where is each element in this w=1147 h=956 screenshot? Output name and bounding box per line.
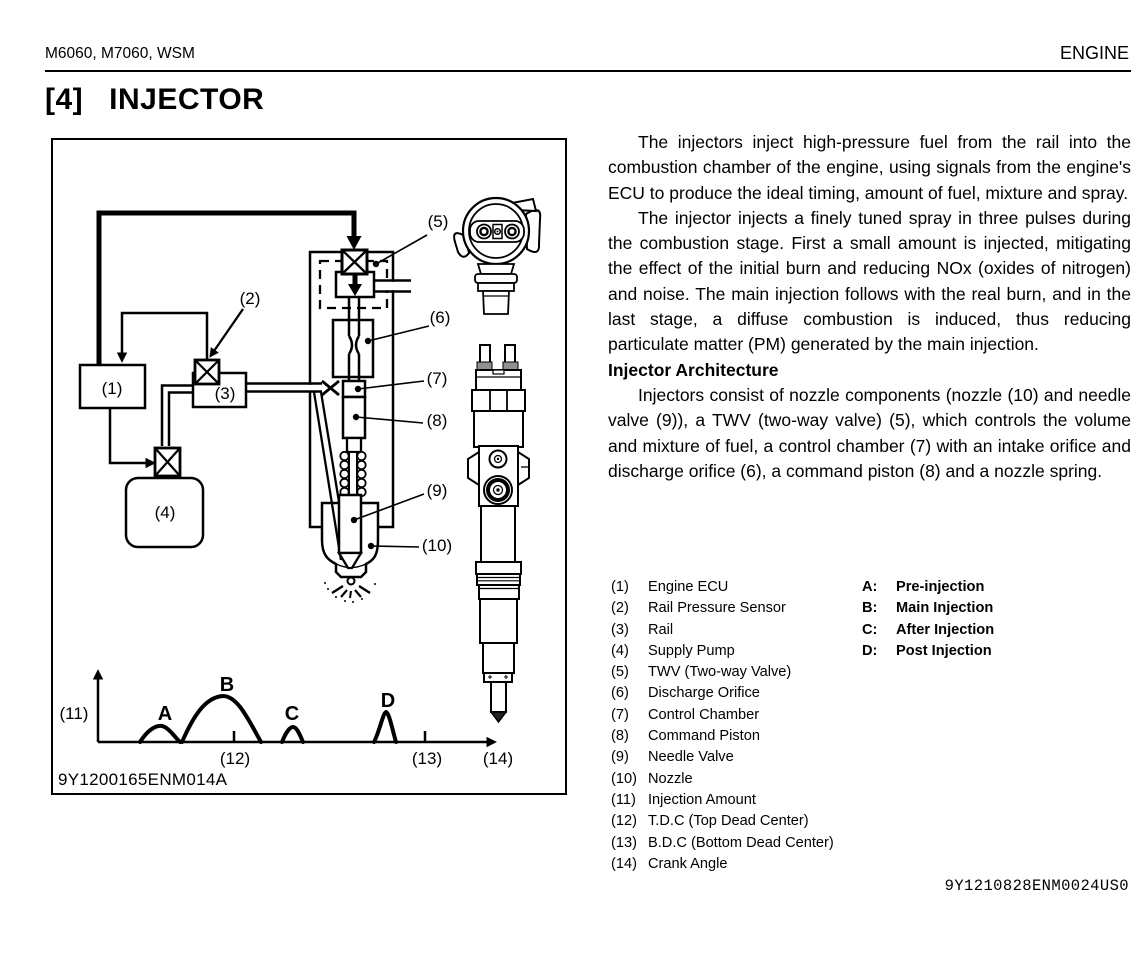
legend-item: (14)Crank Angle bbox=[611, 854, 834, 875]
legend-num: (6) bbox=[611, 683, 648, 704]
axis-label-crank-angle: (14) bbox=[483, 749, 513, 768]
page-title-number: [4] bbox=[45, 83, 83, 116]
injector-body-schematic bbox=[246, 250, 411, 585]
callout-8: (8) bbox=[427, 411, 448, 430]
callout-6: (6) bbox=[430, 308, 451, 327]
legend-label: B.D.C (Bottom Dead Center) bbox=[648, 835, 834, 851]
legend-item: (6)Discharge Orifice bbox=[611, 683, 834, 704]
callout-1: (1) bbox=[102, 379, 123, 398]
paragraph-2: The injector injects a finely tuned spra… bbox=[608, 206, 1131, 358]
body-text-column: The injectors inject high-pressure fuel … bbox=[608, 130, 1131, 484]
legend-item: (12)T.D.C (Top Dead Center) bbox=[611, 811, 834, 832]
axis-label-bdc: (13) bbox=[412, 749, 442, 768]
legend-num: (7) bbox=[611, 705, 648, 726]
peak-label-C: C bbox=[285, 703, 299, 725]
legend-item: (5)TWV (Two-way Valve) bbox=[611, 662, 834, 683]
letter-legend: A:Pre-injection B:Main Injection C:After… bbox=[862, 577, 994, 662]
legend-num: (1) bbox=[611, 577, 648, 598]
injector-side-view bbox=[468, 345, 529, 722]
figure-caption-code: 9Y1200165ENM014A bbox=[58, 770, 227, 790]
legend-num: (10) bbox=[611, 769, 648, 790]
legend-item: A:Pre-injection bbox=[862, 577, 994, 598]
legend-item: (13)B.D.C (Bottom Dead Center) bbox=[611, 833, 834, 854]
legend-label: Post Injection bbox=[896, 643, 992, 659]
legend-label: Engine ECU bbox=[648, 579, 728, 595]
peak-D-curve bbox=[374, 712, 396, 742]
axis-label-injection-amount: (11) bbox=[60, 704, 89, 723]
injector-figure: (1) (2) (3) (4) (5) (6) (7) (8) (9) (10) bbox=[51, 138, 567, 795]
legend-label: Rail Pressure Sensor bbox=[648, 600, 786, 616]
legend-label: Command Piston bbox=[648, 728, 760, 744]
legend-item: (7)Control Chamber bbox=[611, 705, 834, 726]
page-title-text: INJECTOR bbox=[109, 83, 264, 116]
legend-num: (13) bbox=[611, 833, 648, 854]
legend-label: Pre-injection bbox=[896, 579, 984, 595]
subheading-injector-architecture: Injector Architecture bbox=[608, 358, 1131, 383]
callout-4: (4) bbox=[155, 503, 176, 522]
legend-num: (14) bbox=[611, 854, 648, 875]
header-rule bbox=[45, 70, 1131, 72]
injector-schematic: (1) (2) (3) (4) (5) (6) (7) (8) (9) (10) bbox=[53, 140, 565, 793]
legend-num: (2) bbox=[611, 598, 648, 619]
supply-pump-box bbox=[126, 386, 203, 548]
legend-label: Needle Valve bbox=[648, 749, 734, 765]
callout-3: (3) bbox=[215, 384, 236, 403]
legend-label: Supply Pump bbox=[648, 643, 735, 659]
callout-9: (9) bbox=[427, 481, 448, 500]
legend-key: C: bbox=[862, 620, 896, 641]
legend-item: D:Post Injection bbox=[862, 641, 994, 662]
peak-label-B: B bbox=[220, 674, 234, 696]
legend-num: (11) bbox=[611, 790, 648, 811]
legend-item: C:After Injection bbox=[862, 620, 994, 641]
peak-label-A: A bbox=[158, 703, 172, 725]
legend-num: (12) bbox=[611, 811, 648, 832]
peak-A-curve bbox=[140, 726, 180, 742]
legend-key: A: bbox=[862, 577, 896, 598]
legend-item: (3)Rail bbox=[611, 620, 834, 641]
legend-label: Crank Angle bbox=[648, 856, 728, 872]
peak-C-curve bbox=[282, 727, 303, 742]
header-section: ENGINE bbox=[1060, 43, 1129, 64]
legend-label: Control Chamber bbox=[648, 707, 759, 723]
callout-10: (10) bbox=[422, 536, 452, 555]
callout-7: (7) bbox=[427, 369, 448, 388]
legend-item: (9)Needle Valve bbox=[611, 747, 834, 768]
manual-page: M6060, M7060, WSM ENGINE [4]INJECTOR bbox=[0, 0, 1147, 956]
callout-2: (2) bbox=[240, 289, 261, 308]
legend-item: (2)Rail Pressure Sensor bbox=[611, 598, 834, 619]
legend-num: (3) bbox=[611, 620, 648, 641]
peak-label-D: D bbox=[381, 690, 395, 712]
legend-num: (9) bbox=[611, 747, 648, 768]
legend-label: Rail bbox=[648, 622, 673, 638]
legend-label: Nozzle bbox=[648, 771, 693, 787]
legend-item: (10)Nozzle bbox=[611, 769, 834, 790]
legend-label: T.D.C (Top Dead Center) bbox=[648, 813, 809, 829]
legend-num: (5) bbox=[611, 662, 648, 683]
legend-num: (4) bbox=[611, 641, 648, 662]
footer-document-code: 9Y1210828ENM0024US0 bbox=[945, 877, 1129, 895]
peak-B-curve bbox=[182, 696, 261, 742]
legend-item: B:Main Injection bbox=[862, 598, 994, 619]
callout-5: (5) bbox=[428, 212, 449, 231]
legend-label: Discharge Orifice bbox=[648, 685, 760, 701]
legend-label: After Injection bbox=[896, 622, 994, 638]
legend-item: (1)Engine ECU bbox=[611, 577, 834, 598]
legend-item: (4)Supply Pump bbox=[611, 641, 834, 662]
header-model-code: M6060, M7060, WSM bbox=[45, 45, 195, 63]
page-title: [4]INJECTOR bbox=[45, 83, 264, 117]
legend-label: TWV (Two-way Valve) bbox=[648, 664, 791, 680]
injector-top-view bbox=[454, 198, 540, 314]
numbered-legend: (1)Engine ECU (2)Rail Pressure Sensor (3… bbox=[611, 577, 834, 875]
legend-item: (8)Command Piston bbox=[611, 726, 834, 747]
axis-label-tdc: (12) bbox=[220, 749, 250, 768]
legend-key: B: bbox=[862, 598, 896, 619]
paragraph-3: Injectors consist of nozzle components (… bbox=[608, 383, 1131, 484]
legend-label: Injection Amount bbox=[648, 792, 756, 808]
legend-key: D: bbox=[862, 641, 896, 662]
legend-item: (11)Injection Amount bbox=[611, 790, 834, 811]
paragraph-1: The injectors inject high-pressure fuel … bbox=[608, 130, 1131, 206]
legend-num: (8) bbox=[611, 726, 648, 747]
legend-label: Main Injection bbox=[896, 600, 993, 616]
